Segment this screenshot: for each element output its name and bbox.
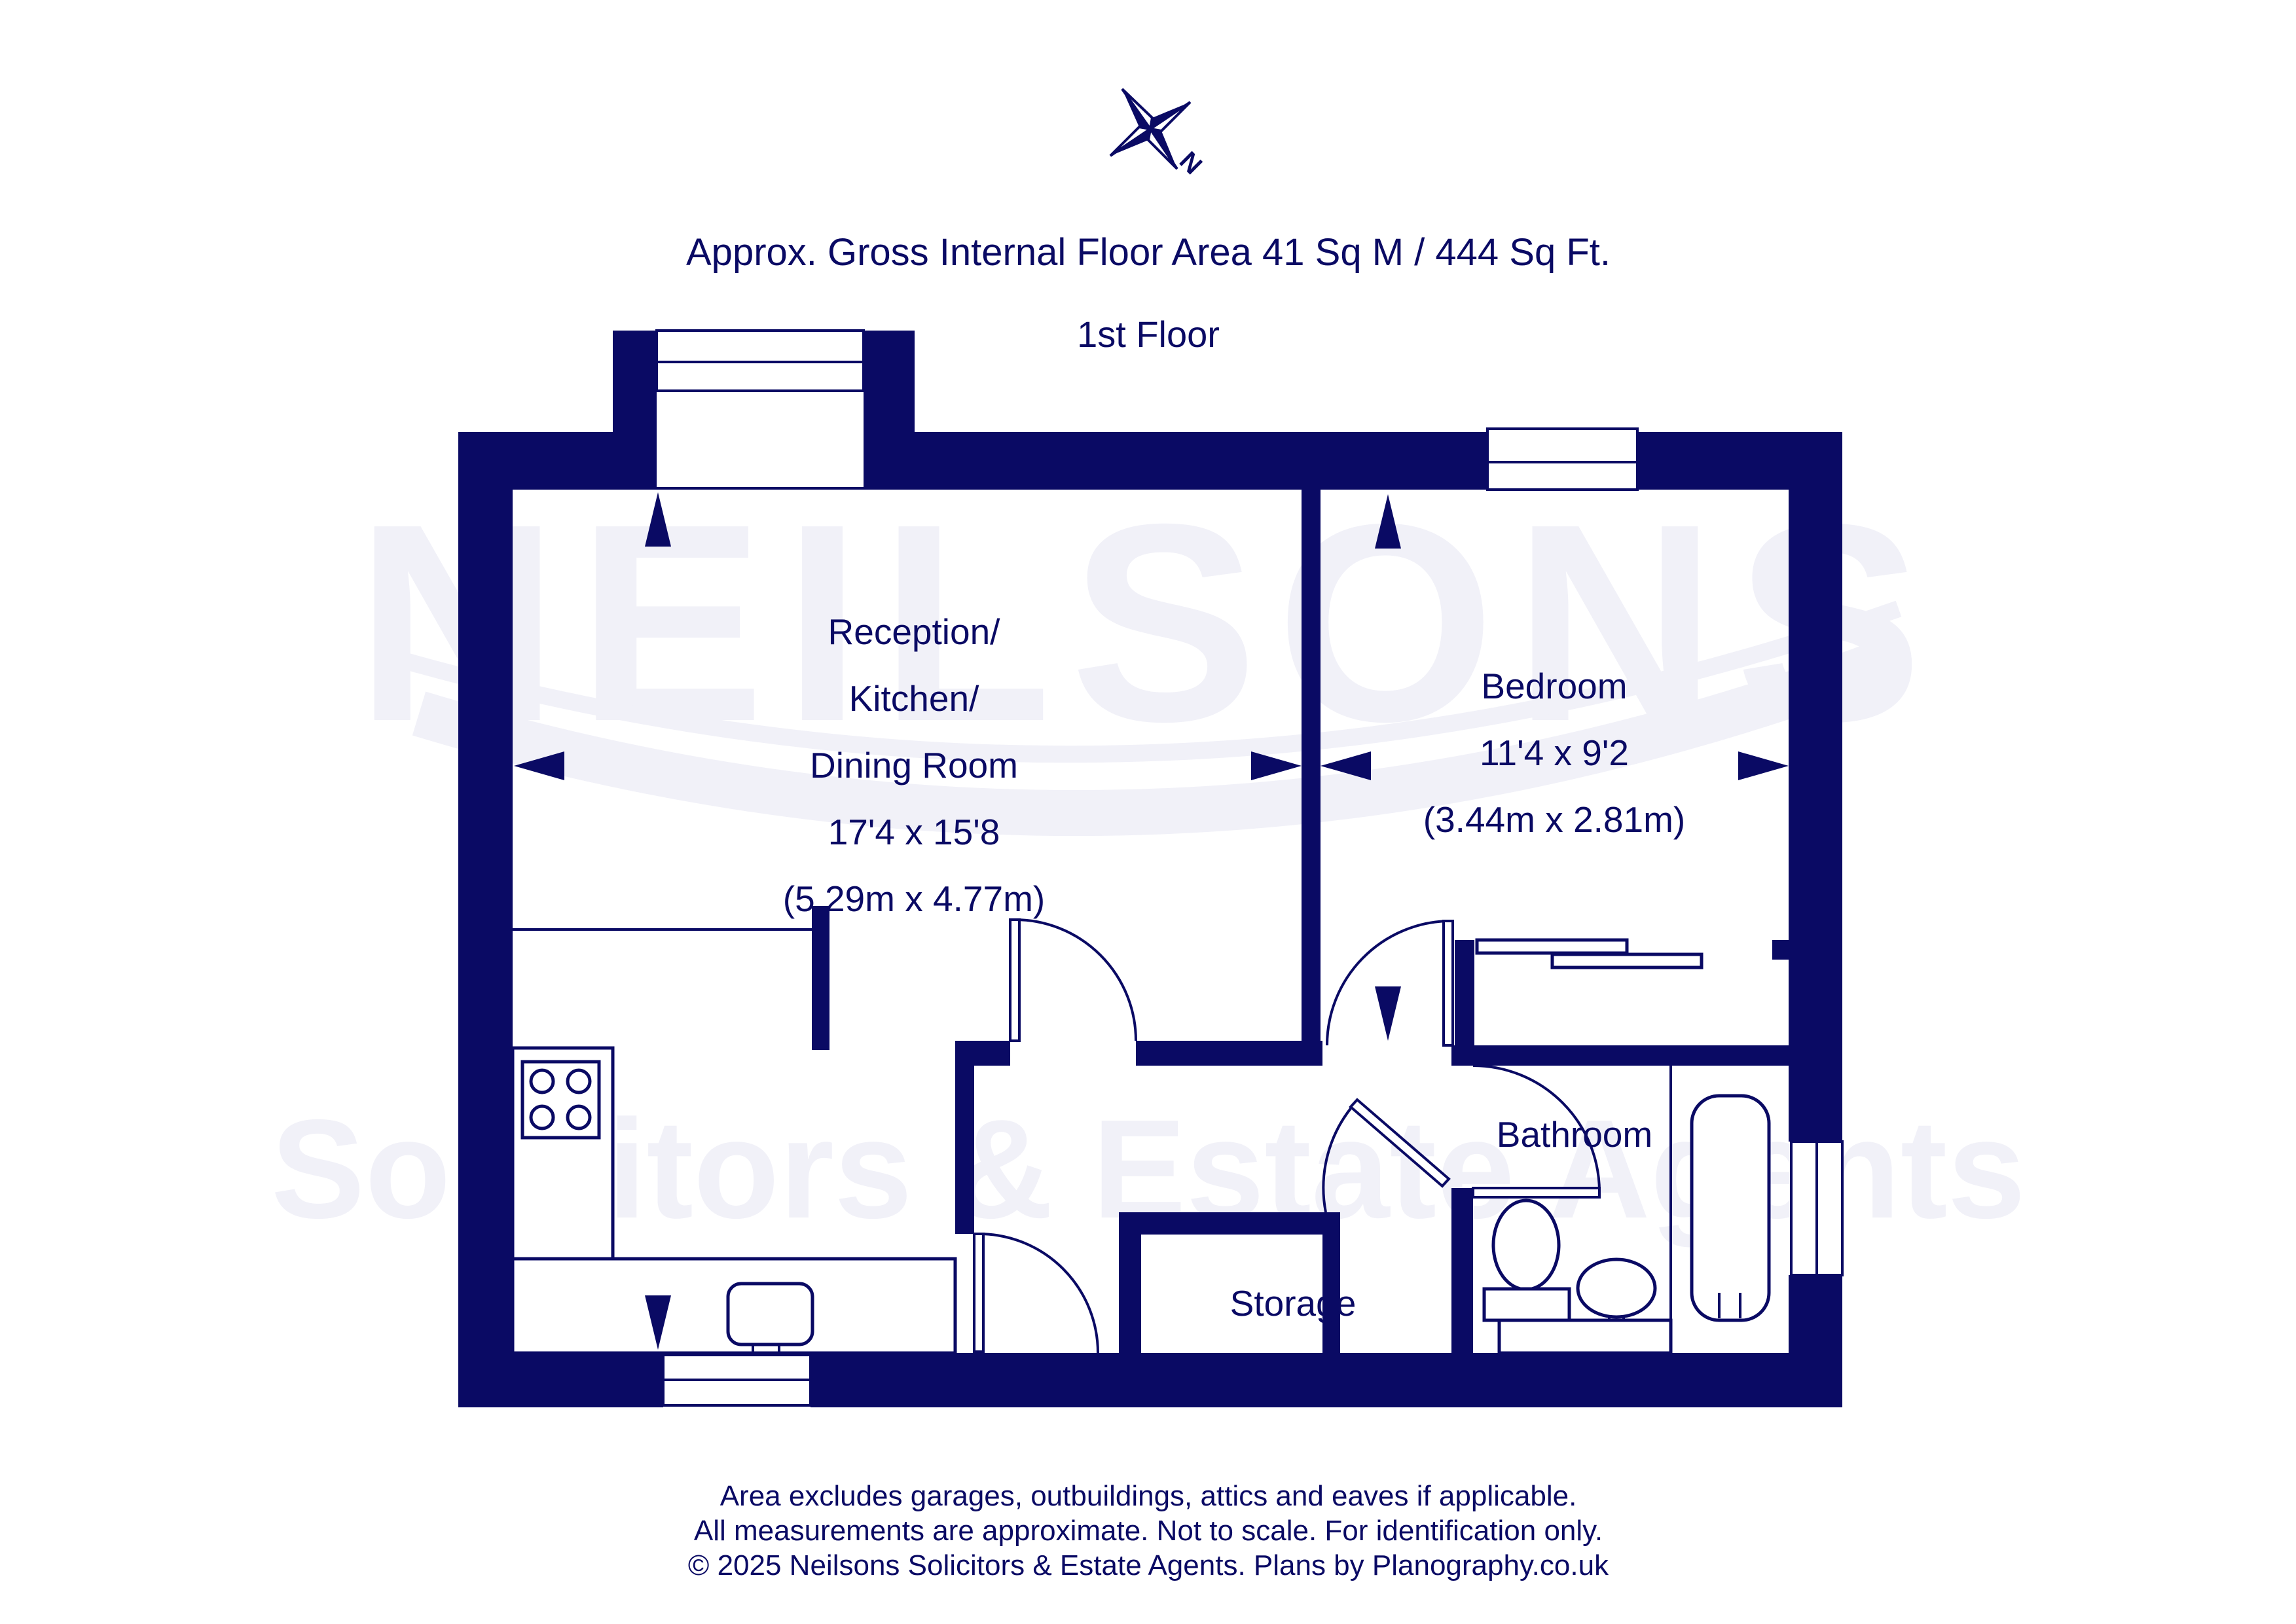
bedroom-dims-imperial: 11'4 x 9'2: [1480, 732, 1629, 773]
footer-line2: All measurements are approximate. Not to…: [694, 1515, 1603, 1547]
wall-top-mid: [915, 432, 1487, 490]
wardrobe-stub-right: [1772, 940, 1790, 960]
wall-left: [458, 432, 513, 1407]
floorplan-page: NEILSONS Solicitors & Estate Agents N Ap…: [0, 0, 2296, 1624]
footer-line1: Area excludes garages, outbuildings, att…: [720, 1480, 1577, 1512]
wall-bathroom-left-lower: [1451, 1188, 1473, 1353]
wall-storage-left: [1119, 1235, 1141, 1353]
kitchen-door: [974, 1234, 1098, 1353]
wall-top-left: [458, 432, 613, 490]
page-title: Approx. Gross Internal Floor Area 41 Sq …: [686, 231, 1611, 274]
wall-hall-top-a: [955, 1041, 1010, 1066]
wall-bottom-left: [458, 1353, 663, 1407]
hob-icon: [522, 1062, 599, 1138]
footer-line3: © 2025 Neilsons Solicitors & Estate Agen…: [688, 1549, 1609, 1581]
reception-name-line3: Dining Room: [810, 745, 1018, 785]
wardrobe-stub-left: [1455, 940, 1474, 1045]
compass-north-label: N: [1174, 147, 1208, 181]
compass-icon: N: [1110, 89, 1207, 180]
storage-label: Storage: [1230, 1283, 1357, 1324]
wall-kitchen-hall: [955, 1066, 974, 1234]
kitchen-sink-icon: [728, 1284, 812, 1353]
bay-wall-left: [613, 331, 657, 490]
reception-name-line2: Kitchen/: [849, 678, 979, 719]
floor-label: 1st Floor: [1077, 314, 1220, 355]
wall-right-upper: [1789, 432, 1842, 1142]
wall-reception-bedroom: [1302, 490, 1321, 1045]
reception-door: [1010, 920, 1136, 1041]
bathtub-icon: [1692, 1096, 1769, 1320]
reception-dims-imperial: 17'4 x 15'8: [828, 812, 1000, 852]
bedroom-name: Bedroom: [1481, 666, 1627, 706]
wall-storage-top: [1119, 1212, 1340, 1235]
wall-kitchen-stub: [812, 906, 829, 1050]
wardrobe-sliding-doors: [1477, 940, 1702, 967]
bedroom-dims-metric: (3.44m x 2.81m): [1423, 799, 1685, 840]
reception-dims-metric: (5.29m x 4.77m): [783, 878, 1045, 919]
wall-bottom-right: [811, 1353, 1842, 1407]
bathroom-vanity: [1499, 1320, 1671, 1353]
wall-hall-top-b: [1136, 1041, 1322, 1066]
kitchen-window: [663, 1355, 811, 1405]
bedroom-height-arrow-down: [1375, 986, 1401, 1041]
floorplan-canvas: NEILSONS Solicitors & Estate Agents N Ap…: [0, 0, 2296, 1624]
wall-bedroom-bottom: [1451, 1045, 1789, 1066]
bathroom-label: Bathroom: [1497, 1114, 1652, 1155]
reception-name-line1: Reception/: [828, 611, 1001, 652]
bay-wall-right: [864, 331, 915, 490]
footer-disclaimer: Area excludes garages, outbuildings, att…: [688, 1480, 1609, 1581]
bedroom-window: [1487, 429, 1637, 490]
bathroom-window: [1791, 1142, 1842, 1275]
